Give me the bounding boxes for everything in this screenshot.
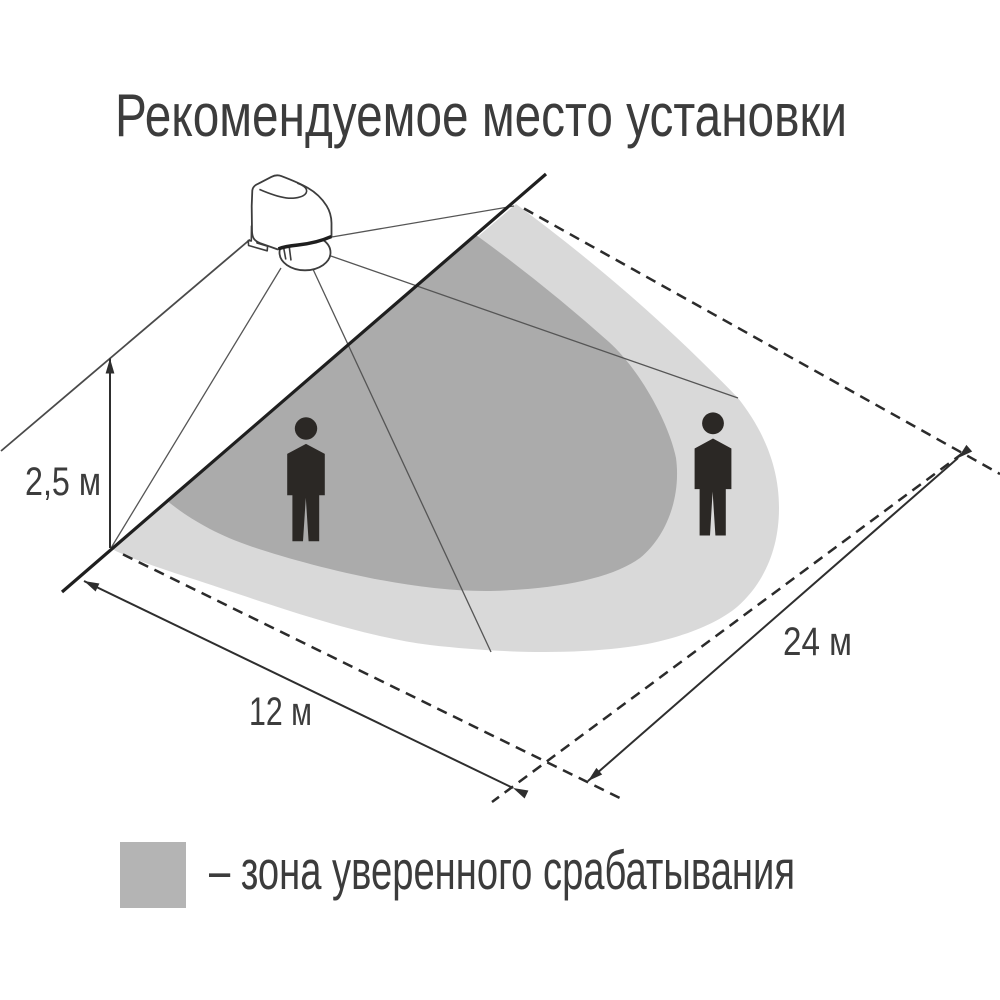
svg-text:Рекомендуемое место установки: Рекомендуемое место установки [115,82,847,149]
svg-text:– зона уверенного срабатывания: – зона уверенного срабатывания [209,839,795,901]
svg-text:24 м: 24 м [783,620,852,664]
svg-text:12 м: 12 м [249,690,312,734]
svg-text:2,5 м: 2,5 м [25,460,101,504]
